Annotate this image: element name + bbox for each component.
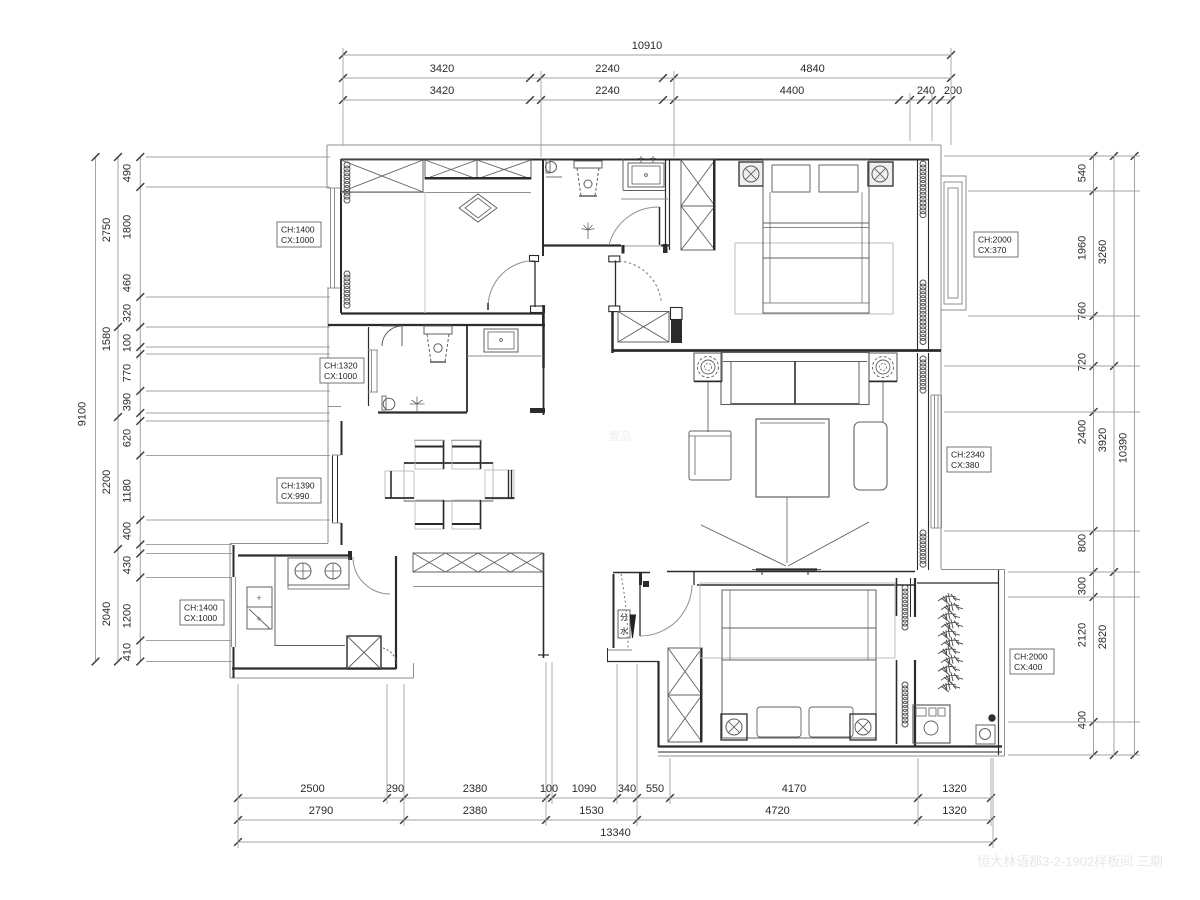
svg-text:770: 770 (122, 364, 134, 382)
svg-text:3420: 3420 (430, 63, 454, 75)
svg-text:320: 320 (122, 304, 134, 322)
svg-text:CH:1390: CH:1390 (281, 481, 315, 491)
svg-text:1320: 1320 (942, 783, 966, 795)
svg-text:200: 200 (944, 85, 962, 97)
svg-text:2040: 2040 (101, 602, 113, 626)
svg-text:290: 290 (386, 783, 404, 795)
svg-text:800: 800 (1077, 534, 1089, 552)
svg-text:2500: 2500 (300, 783, 324, 795)
svg-text:CX:1000: CX:1000 (281, 235, 314, 245)
svg-text:CX:1000: CX:1000 (324, 371, 357, 381)
svg-text:390: 390 (122, 393, 134, 411)
svg-text:2380: 2380 (463, 783, 487, 795)
svg-text:540: 540 (1077, 164, 1089, 182)
svg-text:430: 430 (122, 556, 134, 574)
svg-text:+: + (256, 593, 261, 603)
svg-text:100: 100 (540, 783, 558, 795)
svg-text:300: 300 (1077, 577, 1089, 595)
svg-text:2750: 2750 (101, 218, 113, 242)
svg-text:CX:990: CX:990 (281, 491, 310, 501)
svg-text:CH:2000: CH:2000 (978, 235, 1012, 245)
svg-text:1090: 1090 (572, 783, 596, 795)
svg-text:2790: 2790 (309, 805, 333, 817)
svg-text:CH:1400: CH:1400 (184, 603, 218, 613)
svg-text:13340: 13340 (600, 827, 631, 839)
svg-text:550: 550 (646, 783, 664, 795)
svg-text:壹品: 壹品 (609, 430, 631, 443)
svg-text:100: 100 (122, 334, 134, 352)
svg-text:水: 水 (620, 626, 628, 636)
svg-text:1530: 1530 (579, 805, 603, 817)
svg-text:1180: 1180 (122, 479, 134, 503)
svg-text:2380: 2380 (463, 805, 487, 817)
svg-text:1320: 1320 (942, 805, 966, 817)
svg-text:760: 760 (1077, 302, 1089, 320)
svg-text:3420: 3420 (430, 85, 454, 97)
svg-text:CX:1000: CX:1000 (184, 613, 217, 623)
svg-text:340: 340 (618, 783, 636, 795)
svg-text:1580: 1580 (101, 327, 113, 351)
svg-text:2200: 2200 (101, 470, 113, 494)
svg-text:1800: 1800 (122, 215, 134, 239)
svg-text:10910: 10910 (632, 40, 663, 52)
svg-text:4170: 4170 (782, 783, 806, 795)
svg-text:10390: 10390 (1118, 433, 1130, 464)
svg-text:CH:1400: CH:1400 (281, 225, 315, 235)
svg-text:3920: 3920 (1097, 428, 1109, 452)
svg-text:4840: 4840 (800, 63, 824, 75)
svg-text:720: 720 (1077, 353, 1089, 371)
svg-text:+: + (256, 614, 261, 624)
svg-text:4400: 4400 (780, 85, 804, 97)
svg-text:9100: 9100 (77, 402, 89, 426)
svg-text:400: 400 (122, 522, 134, 540)
svg-text:2240: 2240 (595, 85, 619, 97)
svg-text:3260: 3260 (1097, 240, 1109, 264)
svg-text:1200: 1200 (122, 604, 134, 628)
svg-text:CH:1320: CH:1320 (324, 361, 358, 371)
svg-text:CX:380: CX:380 (951, 460, 980, 470)
svg-text:2400: 2400 (1077, 420, 1089, 444)
svg-text:2240: 2240 (595, 63, 619, 75)
svg-text:恒大林语郡3-2-1902样板间 三期: 恒大林语郡3-2-1902样板间 三期 (977, 854, 1163, 869)
svg-text:4720: 4720 (765, 805, 789, 817)
svg-text:490: 490 (122, 164, 134, 182)
svg-text:CH:2340: CH:2340 (951, 450, 985, 460)
svg-text:CH:2000: CH:2000 (1014, 652, 1048, 662)
svg-text:400: 400 (1077, 711, 1089, 729)
svg-text:620: 620 (122, 429, 134, 447)
svg-text:410: 410 (122, 643, 134, 661)
svg-text:CX:370: CX:370 (978, 245, 1007, 255)
svg-text:2120: 2120 (1077, 623, 1089, 647)
svg-text:1960: 1960 (1077, 236, 1089, 260)
svg-text:2820: 2820 (1097, 625, 1109, 649)
svg-text:CX:400: CX:400 (1014, 662, 1043, 672)
svg-text:460: 460 (122, 274, 134, 292)
